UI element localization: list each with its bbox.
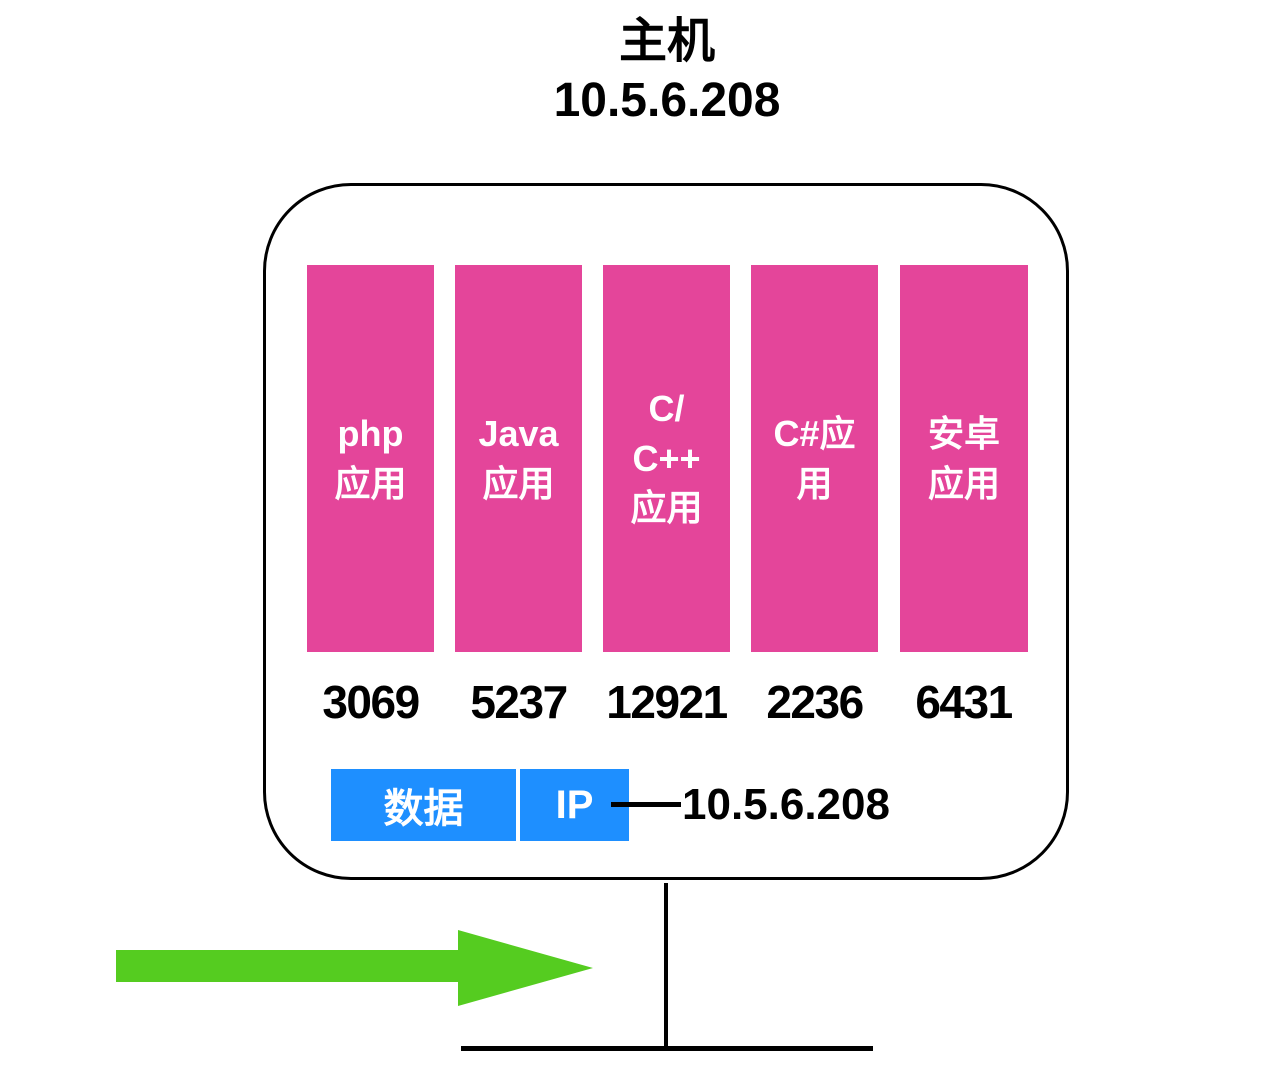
app-bar-label: Java 应用 xyxy=(478,409,558,508)
app-bar-php: php 应用 xyxy=(307,265,434,652)
app-bar-java: Java 应用 xyxy=(455,265,582,652)
title-block: 主机 10.5.6.208 xyxy=(267,12,1067,130)
app-bar-c-cpp: C/ C++ 应用 xyxy=(603,265,730,652)
packet-box: 数据 IP xyxy=(331,769,629,841)
page-title: 主机 xyxy=(267,12,1067,72)
packet-ip-connector-line xyxy=(611,802,681,807)
network-bus-line xyxy=(461,1046,873,1051)
app-port-csharp: 2236 xyxy=(750,674,879,730)
app-port-php: 3069 xyxy=(306,674,435,730)
app-bar-android: 安卓 应用 xyxy=(900,265,1028,652)
app-port-android: 6431 xyxy=(899,674,1028,730)
app-bar-csharp: C#应 用 xyxy=(751,265,878,652)
host-drop-line xyxy=(664,883,668,1048)
data-flow-arrow xyxy=(116,928,594,1008)
app-port-java: 5237 xyxy=(454,674,583,730)
packet-ip-value: 10.5.6.208 xyxy=(682,779,890,831)
host-ip-title: 10.5.6.208 xyxy=(267,72,1067,130)
app-port-c-cpp: 12921 xyxy=(602,674,731,730)
diagram-canvas: 主机 10.5.6.208 php 应用 Java 应用 C/ C++ 应用 C… xyxy=(0,0,1264,1082)
data-flow-arrow-shape xyxy=(116,930,593,1006)
app-bar-label: php 应用 xyxy=(334,409,406,508)
app-bar-label: C/ C++ 应用 xyxy=(630,384,702,533)
app-bar-label: 安卓 应用 xyxy=(928,409,1000,508)
app-bar-label: C#应 用 xyxy=(773,409,855,508)
packet-data-cell: 数据 xyxy=(331,769,516,841)
